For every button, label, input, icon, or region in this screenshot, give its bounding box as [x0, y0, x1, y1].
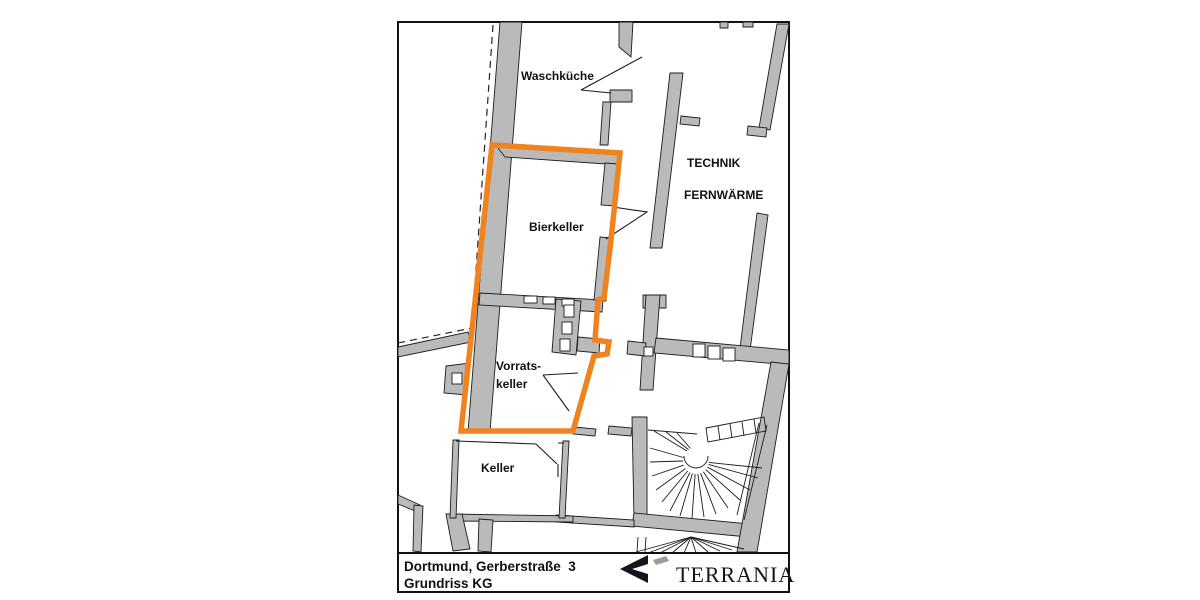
room-label-waschkueche: Waschküche — [521, 69, 594, 83]
window-opening — [524, 296, 537, 303]
window-opening — [644, 347, 653, 356]
winder-center — [684, 447, 708, 471]
wall-segment — [743, 22, 753, 27]
floor-plan-page: Waschküche TECHNIK FERNWÄRME Bierkeller … — [0, 0, 1200, 600]
wall-segment — [627, 341, 646, 356]
room-label-technik: TECHNIK — [687, 156, 741, 170]
floor-plan-drawing: Waschküche TECHNIK FERNWÄRME Bierkeller … — [0, 0, 1200, 600]
room-label-vorratskeller-line1: Vorrats- — [496, 359, 541, 373]
window-opening — [452, 373, 462, 384]
title-block-drawing-title: Grundriss KG — [404, 576, 493, 591]
wall-segment — [608, 426, 632, 436]
wall-segment — [413, 505, 423, 552]
wall-segment — [478, 519, 493, 552]
room-label-bierkeller: Bierkeller — [529, 220, 584, 234]
room-label-fernwaerme: FERNWÄRME — [684, 187, 763, 202]
window-opening — [723, 348, 735, 361]
wall-segment — [680, 116, 700, 126]
brand-wordmark: TERRANIA — [676, 562, 795, 587]
window-opening — [562, 322, 572, 334]
window-opening — [708, 346, 720, 359]
wall-segment — [632, 417, 647, 520]
title-block-address: Dortmund, Gerberstraße 3 — [404, 559, 576, 574]
title-block: Dortmund, Gerberstraße 3 Grundriss KG TE… — [398, 553, 795, 592]
room-label-vorratskeller-line2: keller — [496, 377, 528, 391]
window-opening — [693, 344, 705, 357]
wall-segment — [610, 90, 632, 102]
window-opening — [560, 339, 570, 351]
window-opening — [543, 297, 555, 304]
room-label-keller: Keller — [481, 461, 515, 475]
window-opening — [564, 305, 574, 317]
wall-segment — [720, 22, 728, 28]
wall-segment — [747, 126, 767, 137]
